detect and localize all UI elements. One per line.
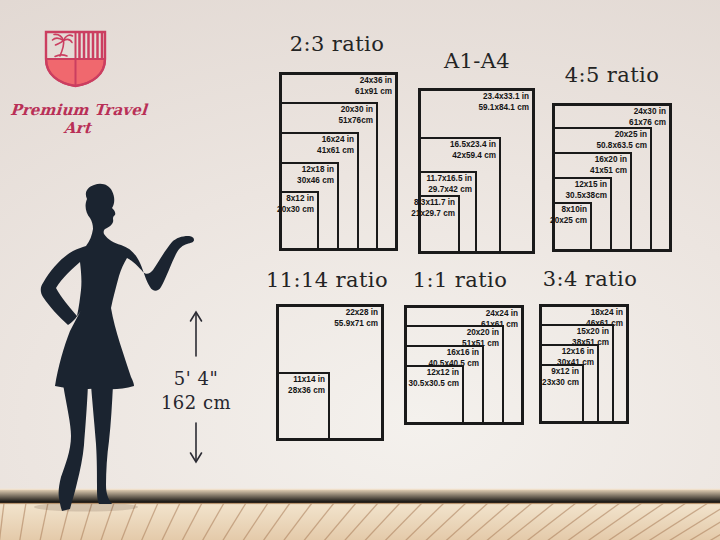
size-cm: 55.9x71 cm — [334, 319, 378, 330]
size-label: 8x12 in20x30 cm — [277, 194, 314, 215]
chart-title: 1:1 ratio — [413, 268, 507, 292]
size-box: 24x24 in61x61 cm20x20 in51x51 cm16x16 in… — [404, 305, 524, 425]
chart-title: 2:3 ratio — [290, 32, 384, 56]
size-inches: 12x18 in — [297, 165, 334, 176]
size-inches: 20x20 in — [462, 328, 499, 339]
size-inches: 15x20 in — [572, 327, 609, 338]
size-box: 12x12 in30.5x30.5 cm — [404, 365, 464, 425]
size-inches: 11.7x16.5 in — [426, 174, 472, 185]
size-label: 22x28 in55.9x71 cm — [334, 308, 378, 329]
size-label: 16x24 in41x61 cm — [317, 135, 354, 156]
size-cm: 28x36 cm — [288, 386, 325, 397]
size-label: 16x20 in41x51 cm — [590, 155, 627, 176]
size-inches: 22x28 in — [334, 308, 378, 319]
size-box: 24x30 in61x76 cm20x25 in50.8x63.5 cm16x2… — [552, 103, 672, 252]
scene: Premium Travel Art 5' 4" 162 cm 2:3 rati… — [0, 0, 720, 540]
size-label: 9x12 in23x30 cm — [542, 367, 579, 388]
size-inches: 24x24 in — [481, 309, 518, 320]
size-inches: 23.4x33.1 in — [478, 92, 529, 103]
size-inches: 12x12 in — [408, 368, 459, 379]
size-label: 23.4x33.1 in59.1x84.1 cm — [478, 92, 529, 113]
size-box: 8.3x11.7 in21x29.7 cm — [418, 195, 460, 254]
size-box: 9x12 in23x30 cm — [539, 364, 584, 424]
size-cm: 23x30 cm — [542, 378, 579, 389]
chart-title: A1-A4 — [444, 49, 510, 73]
size-cm: 29.7x42 cm — [426, 185, 472, 196]
size-label: 12x15 in30.5x38cm — [566, 180, 607, 201]
size-cm: 20x30 cm — [277, 205, 314, 216]
size-label: 12x18 in30x46 cm — [297, 165, 334, 186]
size-cm: 30.5x38cm — [566, 191, 607, 202]
size-cm: 21x29.7 cm — [411, 209, 455, 220]
size-box: 23.4x33.1 in59.1x84.1 cm16.5x23.4 in42x5… — [418, 88, 535, 254]
size-cm: 41x51 cm — [590, 166, 627, 177]
size-label: 16.5x23.4 in42x59.4 cm — [450, 140, 496, 161]
size-inches: 16x16 in — [428, 348, 479, 359]
size-inches: 9x12 in — [542, 367, 579, 378]
size-inches: 8.3x11.7 in — [411, 198, 455, 209]
size-box: 8x12 in20x30 cm — [279, 191, 319, 251]
size-box: 8x10in20x25 cm — [552, 202, 592, 252]
chart-title: 4:5 ratio — [565, 63, 659, 87]
size-inches: 16.5x23.4 in — [450, 140, 496, 151]
size-box: 18x24 in46x61 cm15x20 in38x51 cm12x16 in… — [539, 304, 629, 424]
size-inches: 24x36 in — [355, 76, 392, 87]
size-inches: 16x24 in — [317, 135, 354, 146]
size-cm: 59.1x84.1 cm — [478, 103, 529, 114]
size-inches: 8x10in — [550, 205, 587, 216]
size-label: 24x36 in61x91 cm — [355, 76, 392, 97]
size-inches: 12x16 in — [557, 347, 594, 358]
size-label: 24x30 in61x76 cm — [629, 107, 666, 128]
size-inches: 11x14 in — [288, 375, 325, 386]
size-box: 22x28 in55.9x71 cm11x14 in28x36 cm — [276, 304, 384, 441]
size-charts: 2:3 ratio24x36 in61x91 cm20x30 in51x76cm… — [0, 0, 720, 540]
size-inches: 12x15 in — [566, 180, 607, 191]
size-inches: 18x24 in — [586, 308, 623, 319]
size-label: 20x25 in50.8x63.5 cm — [596, 130, 647, 151]
size-label: 8.3x11.7 in21x29.7 cm — [411, 198, 455, 219]
size-inches: 24x30 in — [629, 107, 666, 118]
size-inches: 16x20 in — [590, 155, 627, 166]
size-cm: 30x46 cm — [297, 176, 334, 187]
size-label: 12x12 in30.5x30.5 cm — [408, 368, 459, 389]
size-label: 8x10in20x25 cm — [550, 205, 587, 226]
size-cm: 20x25 cm — [550, 216, 587, 227]
size-cm: 61x91 cm — [355, 87, 392, 98]
size-cm: 30.5x30.5 cm — [408, 379, 459, 390]
size-box: 24x36 in61x91 cm20x30 in51x76cm16x24 in4… — [279, 72, 398, 251]
size-inches: 20x30 in — [338, 105, 373, 116]
size-cm: 41x61 cm — [317, 146, 354, 157]
size-cm: 42x59.4 cm — [450, 151, 496, 162]
size-label: 20x30 in51x76cm — [338, 105, 373, 126]
chart-title: 11:14 ratio — [266, 268, 388, 292]
chart-title: 3:4 ratio — [543, 267, 637, 291]
size-label: 11.7x16.5 in29.7x42 cm — [426, 174, 472, 195]
size-inches: 20x25 in — [596, 130, 647, 141]
size-cm: 50.8x63.5 cm — [596, 141, 647, 152]
size-cm: 51x76cm — [338, 116, 373, 127]
size-label: 11x14 in28x36 cm — [288, 375, 325, 396]
size-inches: 8x12 in — [277, 194, 314, 205]
size-box: 11x14 in28x36 cm — [276, 372, 330, 441]
